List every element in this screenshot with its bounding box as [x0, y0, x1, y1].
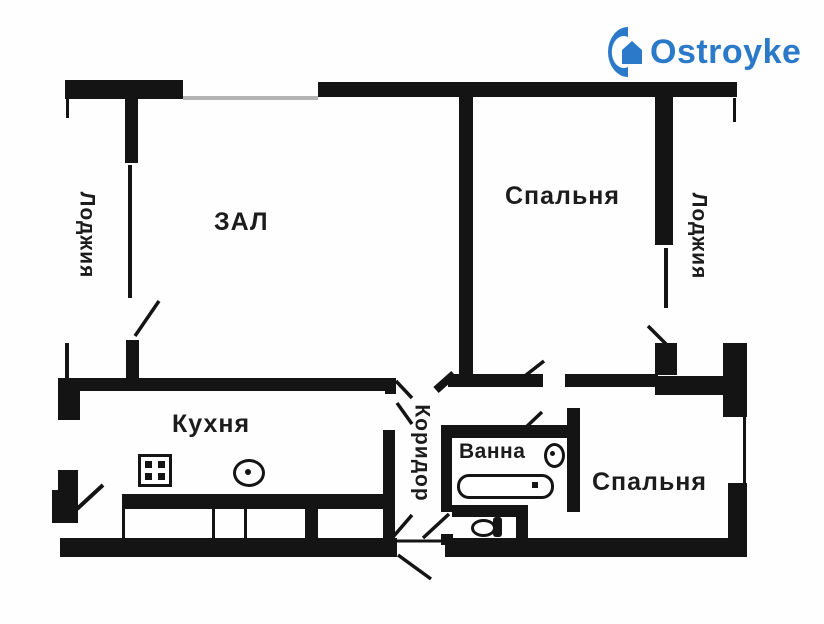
bedroom-top-label: Спальня — [505, 182, 620, 211]
floor-plan: ЗАЛ Спальня Спальня Кухня Ванна Лоджия Л… — [0, 0, 824, 624]
logo: Ostroyke — [604, 26, 801, 78]
vent-door-swing — [77, 485, 103, 509]
door-swing-overlay — [0, 0, 824, 624]
house-logo-icon — [604, 26, 642, 78]
loggia-left-door-swing — [135, 301, 159, 336]
loggia-right-label: Лоджия — [686, 193, 710, 280]
corridor-funnel-wall — [436, 374, 454, 390]
corridor-door-swing — [393, 515, 412, 537]
bath-label: Ванна — [459, 440, 525, 464]
loggia-left-label: Лоджия — [74, 192, 98, 279]
corridor-label: Коридор — [410, 404, 434, 501]
kitchen-label: Кухня — [172, 410, 250, 439]
bedroom1-door-swing — [521, 361, 544, 379]
bedroom2-door-swing — [523, 412, 542, 430]
entrance-door-swing — [398, 555, 431, 579]
loggia-left-label-wrap: Лоджия — [56, 175, 116, 295]
corridor-label-wrap: Коридор — [392, 393, 452, 513]
bedroom-bottom-label: Спальня — [592, 468, 707, 497]
loggia-right-label-wrap: Лоджия — [668, 176, 728, 296]
loggia-right-door-swing — [648, 326, 666, 344]
toilet-door-swing — [423, 514, 449, 538]
logo-text: Ostroyke — [650, 33, 801, 72]
zal-label: ЗАЛ — [214, 208, 269, 237]
